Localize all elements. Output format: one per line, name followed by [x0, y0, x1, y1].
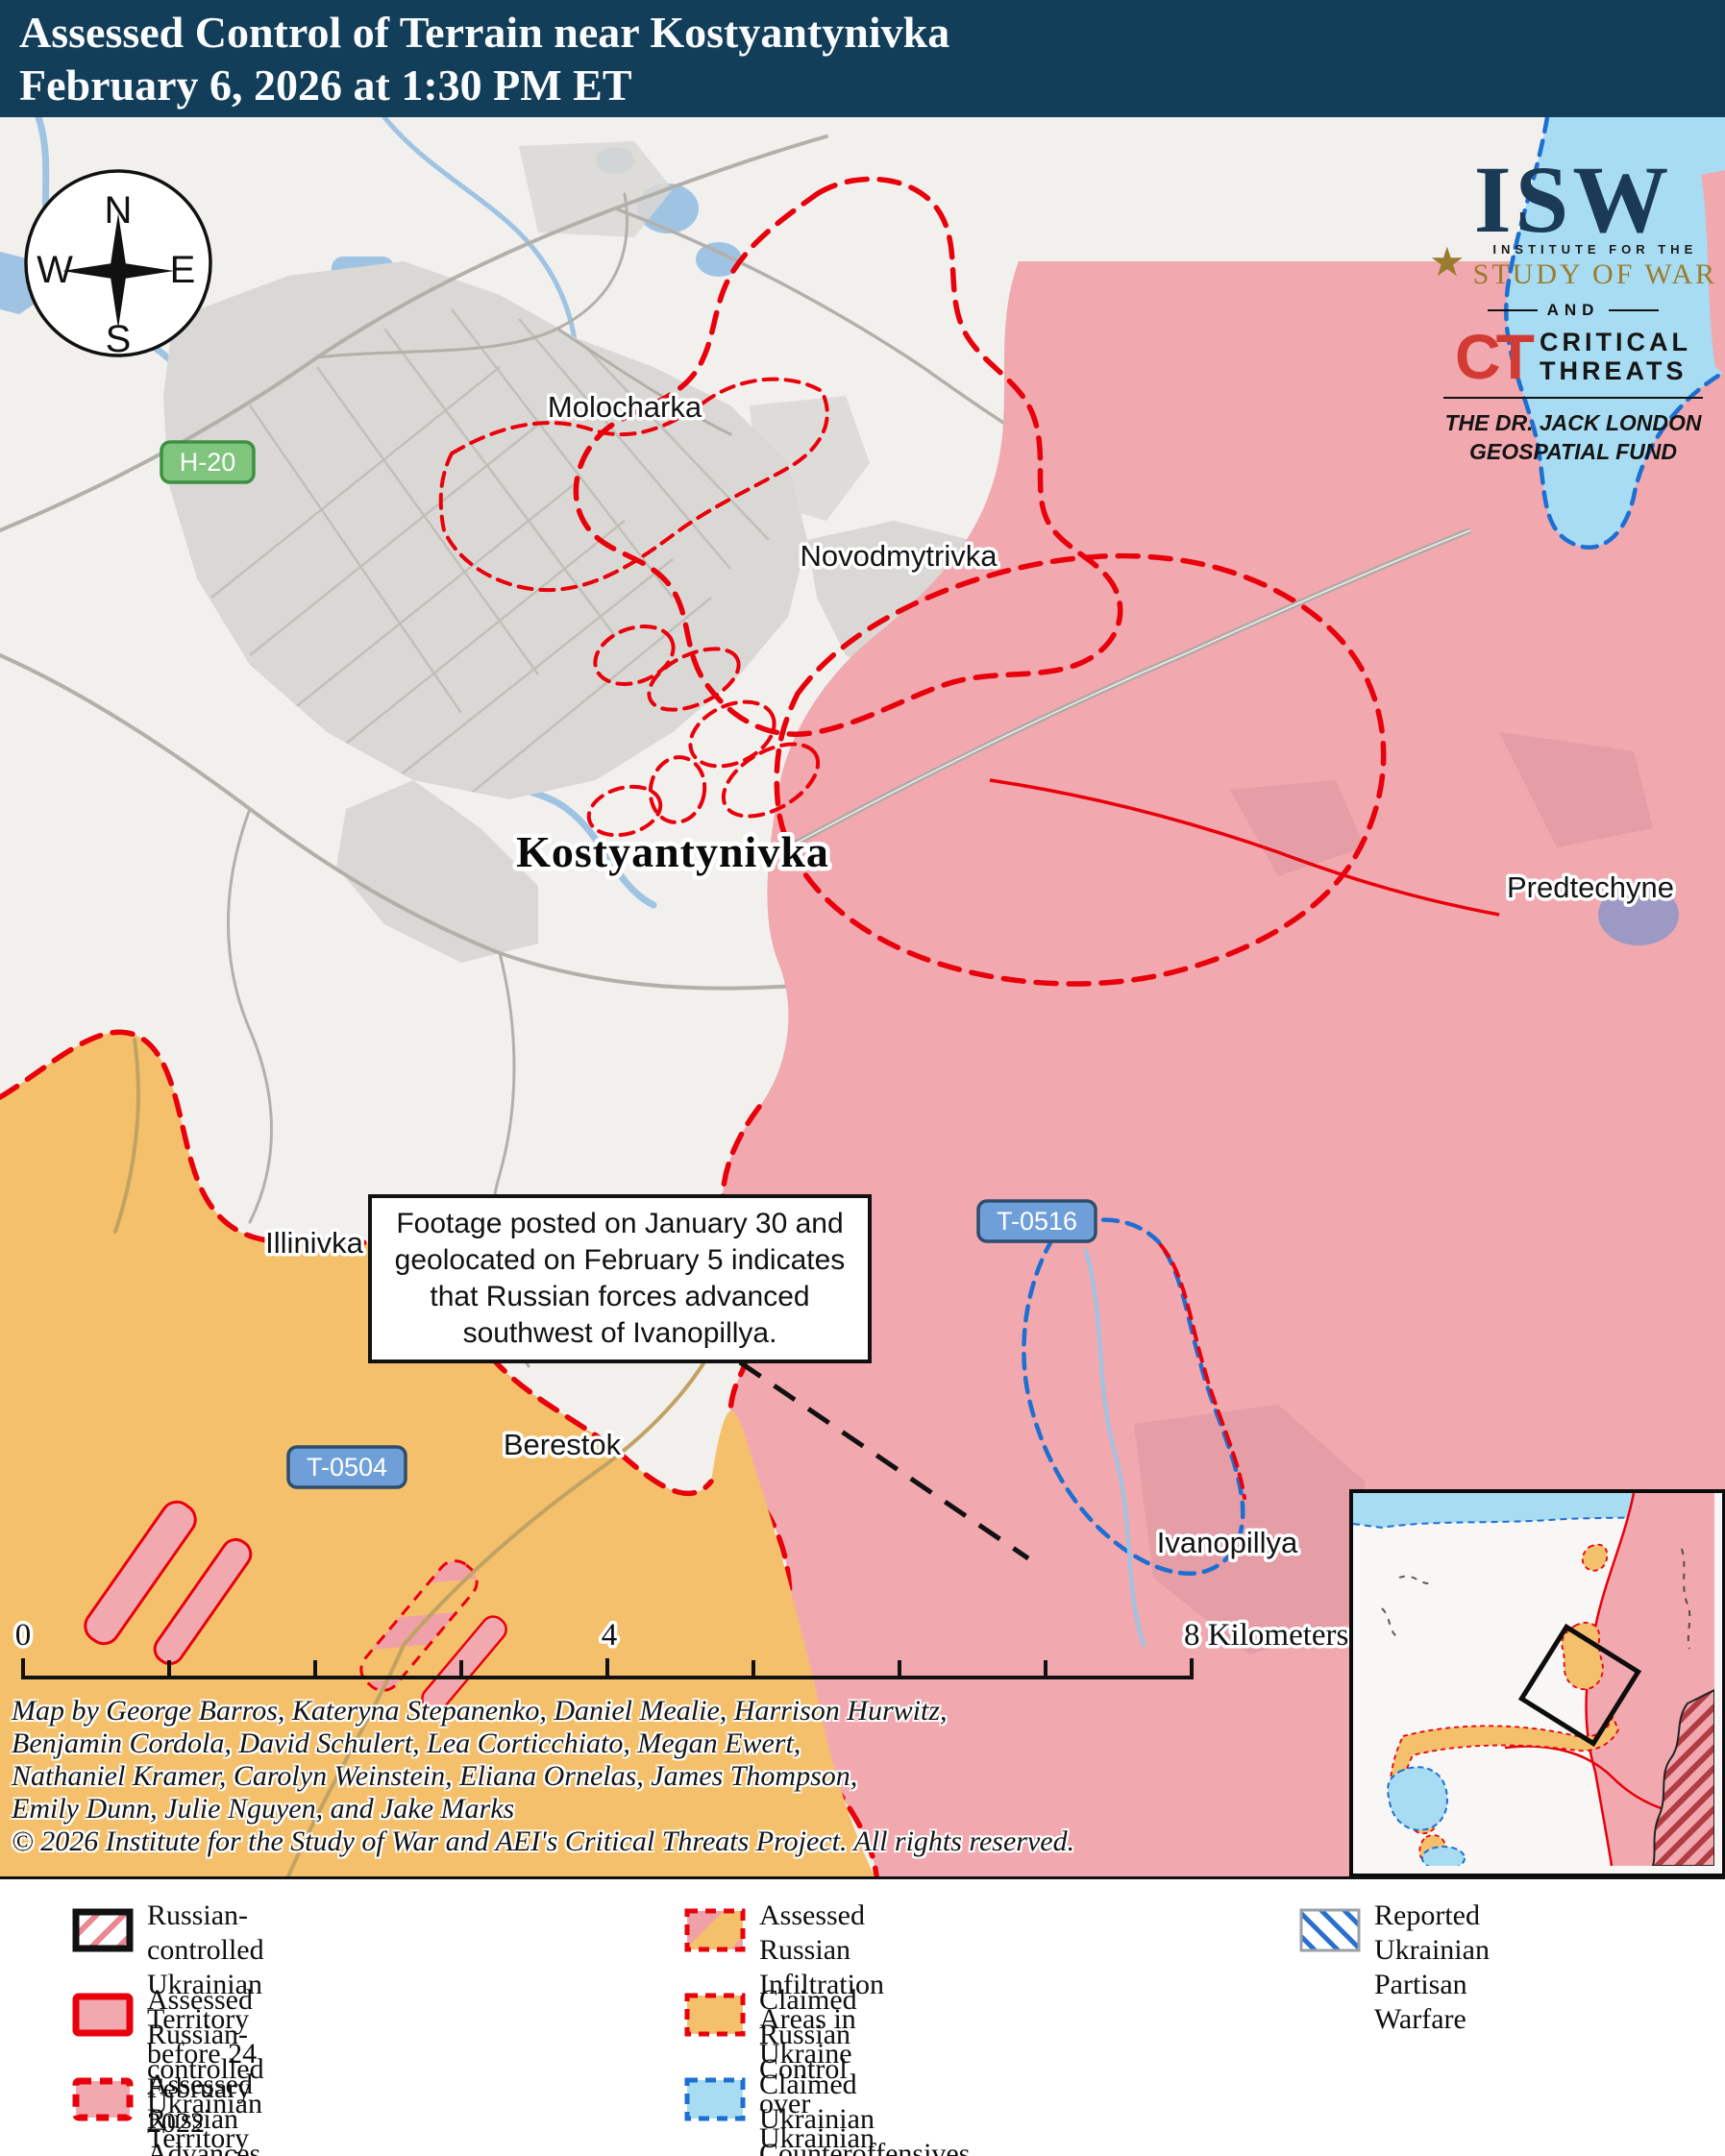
label-kostyantynivka: Kostyantynivka — [516, 827, 829, 876]
compass-w: W — [37, 249, 73, 291]
map-title-line1: Assessed Control of Terrain near Kostyan… — [19, 6, 1725, 59]
inset-locator-map — [1349, 1489, 1725, 1877]
legend-swatch-counteroffensives — [684, 2077, 746, 2121]
credits-line4: Emily Dunn, Julie Nguyen, and Jake Marks — [12, 1793, 1074, 1825]
credits-line1: Map by George Barros, Kateryna Stepanenk… — [12, 1695, 1074, 1727]
credits-line2: Benjamin Cordola, David Schulert, Lea Co… — [12, 1727, 1074, 1760]
ct-threats-text: THREATS — [1540, 356, 1691, 385]
legend-swatch-assessed-control — [72, 1993, 134, 2037]
credits-line5: © 2026 Institute for the Study of War an… — [12, 1825, 1074, 1858]
label-berestok: Berestok — [504, 1428, 622, 1461]
label-novodmytrivka: Novodmytrivka — [801, 539, 998, 573]
label-illinivka: Illinivka — [265, 1226, 363, 1260]
route-badge-t0504-label: T-0504 — [307, 1453, 387, 1482]
scale-four: 4 — [602, 1618, 618, 1653]
legend-label-advances: Assessed Russian Advances in Ukraine — [147, 2068, 260, 2156]
map-credits: Map by George Barros, Kateryna Stepanenk… — [12, 1695, 1074, 1858]
route-badge-t0516: T-0516 — [978, 1201, 1096, 1241]
geospatial-fund-line2: GEOSPATIAL FUND — [1420, 437, 1725, 466]
route-badge-t0504: T-0504 — [288, 1447, 406, 1487]
route-badge-h20-label: H-20 — [180, 448, 236, 477]
compass-n: N — [105, 189, 133, 232]
isw-study-of-war-text: STUDY OF WAR — [1473, 258, 1717, 291]
label-predtechyne: Predtechyne — [1507, 870, 1674, 904]
credits-line3: Nathaniel Kramer, Carolyn Weinstein, Eli… — [12, 1760, 1074, 1793]
legend-label-counteroffensives: Claimed Ukrainian Counteroffensives — [759, 2068, 970, 2156]
route-badge-h20: H-20 — [161, 442, 254, 482]
legend-swatch-pre2022 — [72, 1908, 134, 1952]
isw-institute-text: INSTITUTE FOR THE — [1473, 242, 1717, 257]
legend-swatch-claimed-control — [684, 1993, 746, 2037]
logo-rule — [1443, 397, 1703, 399]
scale-zero: 0 — [15, 1618, 32, 1653]
compass-e: E — [170, 249, 196, 291]
isw-star-icon: ★ — [1429, 242, 1466, 282]
isw-map-page: Assessed Control of Terrain near Kostyan… — [0, 0, 1725, 2156]
title-bar: Assessed Control of Terrain near Kostyan… — [0, 0, 1725, 117]
route-badge-t0516-label: T-0516 — [997, 1207, 1077, 1236]
isw-logo-wordmark: ISW — [1420, 152, 1725, 248]
legend-swatch-infiltration — [684, 1908, 746, 1952]
legend-panel: Russian-controlled Ukrainian Territory b… — [0, 1876, 1725, 2156]
geospatial-fund-line1: THE DR. JACK LONDON — [1420, 408, 1725, 437]
label-molocharka: Molocharka — [548, 390, 702, 424]
map-title-line2: February 6, 2026 at 1:30 PM ET — [19, 59, 1725, 111]
legend-swatch-advances — [72, 2077, 134, 2121]
logo-and-divider: AND — [1420, 301, 1725, 320]
compass-s: S — [106, 318, 132, 360]
logo-and-text: AND — [1547, 301, 1600, 320]
critical-threats-logo: CT CRITICAL THREATS — [1420, 328, 1725, 385]
scale-eight: 8 Kilometers — [1184, 1618, 1348, 1653]
legend-label-partisan: Reported Ukrainian Partisan Warfare — [1374, 1899, 1490, 2037]
isw-ct-logo: ISW ★ INSTITUTE FOR THE STUDY OF WAR AND… — [1420, 152, 1725, 466]
ct-critical-text: CRITICAL — [1540, 328, 1691, 356]
map-canvas: H-20 T-0516 T-0504 Molocharka Novodmytri… — [0, 117, 1725, 1876]
legend-swatch-partisan — [1299, 1908, 1361, 1952]
label-ivanopillya: Ivanopillya — [1157, 1526, 1298, 1559]
inset-artwork — [1353, 1493, 1714, 1866]
ct-monogram: CT — [1455, 328, 1530, 385]
annotation-callout: Footage posted on January 30 and geoloca… — [368, 1194, 872, 1363]
